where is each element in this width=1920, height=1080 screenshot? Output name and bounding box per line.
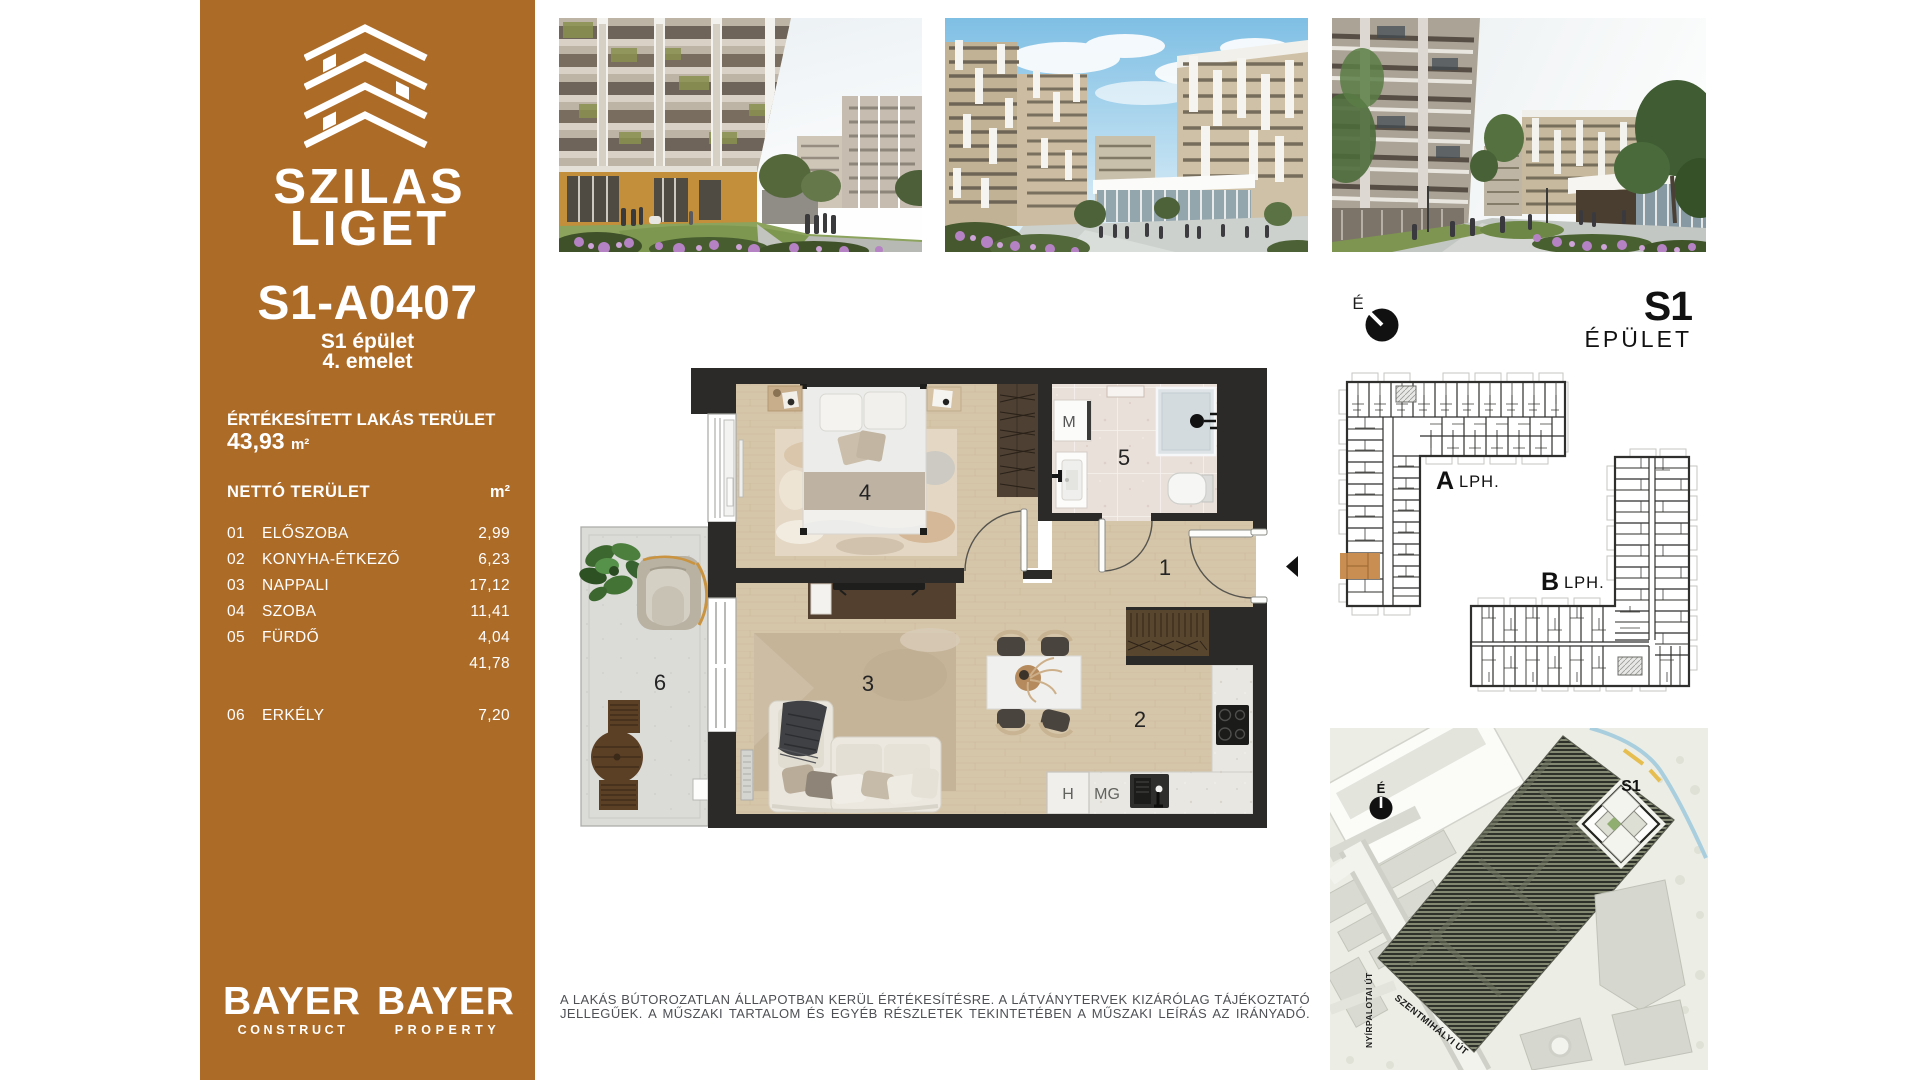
- svg-text:B: B: [1541, 568, 1559, 596]
- svg-text:3: 3: [862, 671, 874, 696]
- svg-text:2: 2: [1134, 707, 1146, 732]
- svg-text:4: 4: [859, 480, 871, 505]
- svg-text:H: H: [1062, 786, 1074, 803]
- svg-text:É: É: [1352, 294, 1363, 313]
- svg-text:ÉPÜLET: ÉPÜLET: [1585, 326, 1692, 352]
- svg-text:NYÍRPALOTAI ÚT: NYÍRPALOTAI ÚT: [1363, 972, 1374, 1048]
- svg-text:MG: MG: [1094, 786, 1120, 803]
- svg-text:6: 6: [654, 670, 666, 695]
- svg-text:LPH.: LPH.: [1564, 574, 1605, 592]
- svg-text:S1: S1: [1644, 283, 1692, 329]
- svg-text:S1: S1: [1621, 778, 1641, 795]
- svg-text:A: A: [1436, 467, 1454, 495]
- svg-text:5: 5: [1118, 445, 1130, 470]
- svg-text:M: M: [1062, 414, 1075, 431]
- svg-text:1: 1: [1159, 555, 1171, 580]
- svg-text:LPH.: LPH.: [1459, 473, 1500, 491]
- svg-text:É: É: [1377, 781, 1386, 796]
